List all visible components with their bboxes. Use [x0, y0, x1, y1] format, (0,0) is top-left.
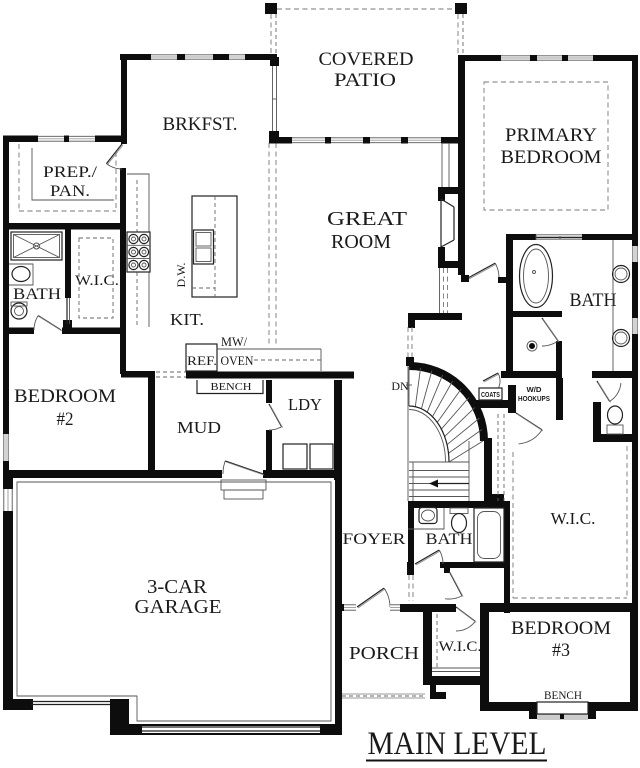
- svg-text:PREP./: PREP./: [43, 164, 98, 181]
- svg-text:#2: #2: [57, 409, 74, 430]
- svg-text:COATS: COATS: [481, 392, 500, 399]
- svg-text:KIT.: KIT.: [170, 310, 204, 329]
- svg-text:ROOM: ROOM: [331, 231, 391, 253]
- svg-text:GREAT: GREAT: [327, 208, 407, 230]
- svg-text:MUD: MUD: [177, 418, 221, 437]
- svg-text:GARAGE: GARAGE: [135, 596, 222, 618]
- svg-text:D.W.: D.W.: [174, 263, 188, 288]
- svg-text:BATH: BATH: [13, 286, 62, 303]
- svg-text:W.I.C.: W.I.C.: [551, 509, 596, 528]
- svg-text:MW/: MW/: [221, 334, 247, 349]
- svg-text:BATH: BATH: [570, 290, 617, 311]
- svg-text:BATH: BATH: [426, 531, 474, 548]
- svg-text:W.I.C.: W.I.C.: [75, 273, 119, 289]
- svg-text:FOYER: FOYER: [343, 531, 406, 548]
- svg-text:COVERED: COVERED: [319, 49, 414, 70]
- svg-text:BENCH: BENCH: [211, 381, 252, 393]
- svg-text:#3: #3: [552, 640, 570, 661]
- svg-text:PAN.: PAN.: [50, 183, 90, 200]
- svg-text:HOOKUPS: HOOKUPS: [518, 396, 550, 403]
- svg-text:BEDROOM: BEDROOM: [14, 386, 116, 407]
- svg-text:W/D: W/D: [527, 387, 542, 394]
- svg-text:BEDROOM: BEDROOM: [501, 147, 602, 168]
- svg-text:3-CAR: 3-CAR: [147, 576, 208, 598]
- svg-text:BENCH: BENCH: [544, 688, 582, 702]
- svg-text:MAIN LEVEL: MAIN LEVEL: [368, 726, 547, 762]
- svg-text:OVEN: OVEN: [221, 353, 255, 368]
- svg-text:PRIMARY: PRIMARY: [505, 125, 597, 146]
- svg-text:LDY: LDY: [288, 395, 322, 414]
- svg-text:REF.: REF.: [187, 353, 217, 368]
- svg-text:W.I.C.: W.I.C.: [439, 639, 482, 655]
- svg-text:BEDROOM: BEDROOM: [511, 618, 611, 639]
- svg-text:PATIO: PATIO: [334, 70, 396, 91]
- svg-text:PORCH: PORCH: [349, 643, 419, 663]
- svg-text:BRKFST.: BRKFST.: [163, 114, 238, 135]
- svg-text:DN: DN: [391, 379, 409, 393]
